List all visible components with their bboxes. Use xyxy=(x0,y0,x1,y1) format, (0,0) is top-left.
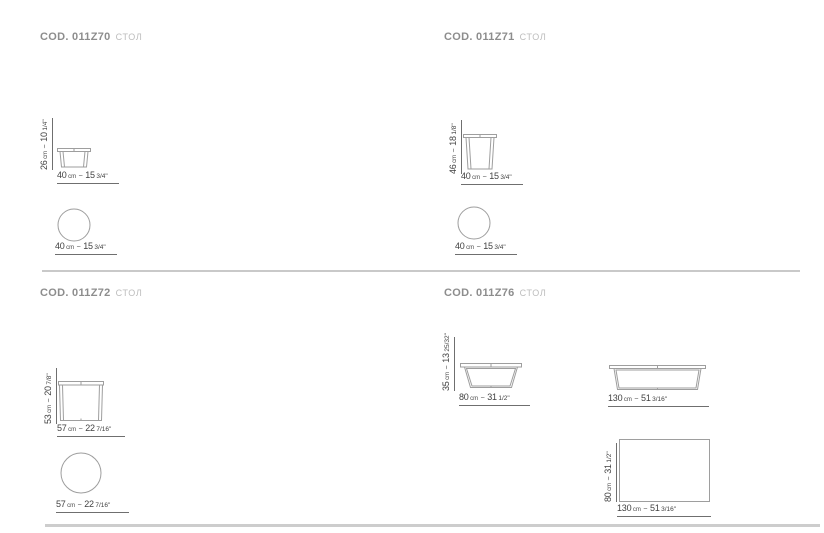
dim-cm-unit: cm xyxy=(633,507,641,513)
dim-cm-number: 80 xyxy=(459,392,469,402)
dim-cm-number: 130 xyxy=(617,503,631,513)
dim-cm-number: 57 xyxy=(56,499,66,509)
section-title-011z72: COD. 011Z72СТОЛ xyxy=(40,283,142,301)
section-divider-top xyxy=(42,270,800,272)
dim-cm-unit: cm xyxy=(47,405,53,413)
dim-separator: ~ xyxy=(451,148,458,152)
dim-cm-unit: cm xyxy=(67,503,75,509)
dim-inch-number: 22 xyxy=(84,499,94,509)
dim-width-011z70: 40 cm ~ 15 3/4" xyxy=(57,170,119,184)
dim-inch-fraction: 1/2" xyxy=(498,395,509,402)
dim-inch-fraction: 3/4" xyxy=(96,173,107,180)
dim-inch-fraction: 3/4" xyxy=(494,244,505,251)
dim-height-011z72: 53 cm ~ 20 7/8" xyxy=(43,368,57,424)
dim-cm-unit: cm xyxy=(607,483,613,491)
section-title-011z70: COD. 011Z70СТОЛ xyxy=(40,27,142,45)
dim-plan-width-011z76: 130 cm ~ 51 3/16" xyxy=(617,503,711,517)
dim-plan-depth-011z76: 80 cm ~ 31 1/2" xyxy=(603,443,617,502)
dim-side-height-011z76: 35 cm ~ 13 25/32" xyxy=(441,337,455,391)
dim-diameter-011z72: 57 cm ~ 22 7/16" xyxy=(56,499,129,513)
dim-side-width-011z76: 80 cm ~ 31 1/2" xyxy=(459,392,530,406)
dim-inch-fraction: 25/32" xyxy=(444,333,451,352)
dim-inch-number: 15 xyxy=(83,241,93,251)
dim-inch-number: 15 xyxy=(483,241,493,251)
dim-inch-number: 22 xyxy=(85,423,95,433)
dim-cm-number: 40 xyxy=(55,241,65,251)
dim-cm-number: 40 xyxy=(455,241,465,251)
dim-inch-number: 15 xyxy=(85,170,95,180)
product-code: COD. 011Z76 xyxy=(444,287,515,299)
side-view-drawing-011z72 xyxy=(58,381,104,422)
dim-inch-number: 20 xyxy=(43,386,53,396)
dim-separator: ~ xyxy=(634,396,638,403)
dim-cm-unit: cm xyxy=(68,427,76,433)
product-category: СТОЛ xyxy=(520,288,547,298)
plan-view-drawing-011z76 xyxy=(619,439,710,502)
dim-inch-fraction: 1/2" xyxy=(606,451,613,462)
dim-separator: ~ xyxy=(79,426,83,433)
dim-inch-fraction: 3/4" xyxy=(500,174,511,181)
dim-separator: ~ xyxy=(46,398,53,402)
dim-separator: ~ xyxy=(606,476,613,480)
product-code: COD. 011Z70 xyxy=(40,31,111,43)
dim-cm-number: 130 xyxy=(608,393,622,403)
dim-separator: ~ xyxy=(42,144,49,148)
top-view-circle-011z72 xyxy=(60,452,102,494)
dim-cm-unit: cm xyxy=(452,155,458,163)
dim-height-011z71: 46 cm ~ 18 1/8" xyxy=(448,120,462,174)
product-category: СТОЛ xyxy=(116,32,143,42)
dim-cm-number: 40 xyxy=(57,170,67,180)
product-category: СТОЛ xyxy=(520,32,547,42)
dim-inch-number: 31 xyxy=(603,464,613,474)
dim-inch-fraction: 7/16" xyxy=(95,502,110,509)
dim-width-011z71: 40 cm ~ 15 3/4" xyxy=(461,171,523,185)
dim-cm-unit: cm xyxy=(68,174,76,180)
side-view-drawing-011z76 xyxy=(460,363,522,389)
top-view-circle-011z70 xyxy=(57,208,91,242)
dim-separator: ~ xyxy=(483,174,487,181)
dim-cm-unit: cm xyxy=(472,175,480,181)
dim-diameter-011z70: 40 cm ~ 15 3/4" xyxy=(55,241,117,255)
dim-inch-number: 13 xyxy=(441,353,451,363)
dim-cm-unit: cm xyxy=(66,245,74,251)
dim-separator: ~ xyxy=(481,395,485,402)
dim-inch-fraction: 7/8" xyxy=(46,373,53,384)
dim-cm-unit: cm xyxy=(470,396,478,402)
section-title-011z76: COD. 011Z76СТОЛ xyxy=(444,283,546,301)
dim-cm-number: 46 xyxy=(448,164,458,174)
dim-inch-fraction: 1/4" xyxy=(42,119,49,130)
dim-separator: ~ xyxy=(477,244,481,251)
dim-diameter-011z71: 40 cm ~ 15 3/4" xyxy=(455,241,517,255)
dim-height-011z70: 26 cm ~ 10 1/4" xyxy=(39,118,53,170)
product-category: СТОЛ xyxy=(116,288,143,298)
section-divider-bottom xyxy=(45,524,820,527)
dim-separator: ~ xyxy=(643,506,647,513)
dim-inch-number: 15 xyxy=(489,171,499,181)
dim-width-011z72: 57 cm ~ 22 7/16" xyxy=(57,423,125,437)
dim-cm-number: 35 xyxy=(441,381,451,391)
dim-inch-fraction: 3/4" xyxy=(94,244,105,251)
dim-cm-unit: cm xyxy=(624,397,632,403)
dim-inch-number: 31 xyxy=(487,392,497,402)
dim-cm-number: 26 xyxy=(39,160,49,170)
dim-inch-fraction: 3/16" xyxy=(661,506,676,513)
dim-cm-number: 80 xyxy=(603,492,613,502)
side-view-drawing-011z71 xyxy=(463,134,497,170)
dim-inch-fraction: 3/16" xyxy=(652,396,667,403)
dim-inch-fraction: 7/16" xyxy=(96,426,111,433)
dim-inch-number: 51 xyxy=(641,393,651,403)
dim-cm-number: 53 xyxy=(43,414,53,424)
dim-front-width-011z76: 130 cm ~ 51 3/16" xyxy=(608,393,709,407)
dim-inch-number: 51 xyxy=(650,503,660,513)
dim-cm-number: 40 xyxy=(461,171,471,181)
side-view-drawing-011z70 xyxy=(57,148,91,168)
top-view-circle-011z71 xyxy=(457,206,491,240)
dim-inch-number: 18 xyxy=(448,136,458,146)
product-code: COD. 011Z71 xyxy=(444,31,515,43)
dim-cm-number: 57 xyxy=(57,423,67,433)
dim-separator: ~ xyxy=(444,365,451,369)
dim-separator: ~ xyxy=(79,173,83,180)
dim-inch-number: 10 xyxy=(39,132,49,142)
catalog-page: { "labels": { "unit_cm": "cm", "sep": "~… xyxy=(0,0,824,533)
dim-separator: ~ xyxy=(77,244,81,251)
dim-cm-unit: cm xyxy=(445,372,451,380)
dim-cm-unit: cm xyxy=(466,245,474,251)
product-code: COD. 011Z72 xyxy=(40,287,111,299)
dim-separator: ~ xyxy=(78,502,82,509)
dim-cm-unit: cm xyxy=(43,151,49,159)
front-view-drawing-011z76 xyxy=(609,365,706,391)
dim-inch-fraction: 1/8" xyxy=(451,123,458,134)
section-title-011z71: COD. 011Z71СТОЛ xyxy=(444,27,546,45)
